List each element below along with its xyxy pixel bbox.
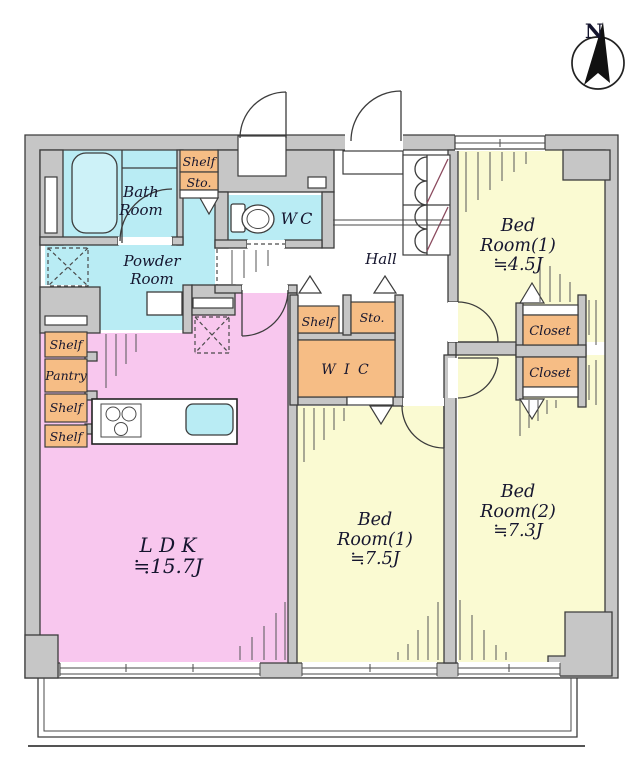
bedroom2-label-1: Bed — [500, 482, 535, 502]
left-wall-slot — [45, 316, 87, 325]
shelf-opening-marker — [299, 276, 321, 293]
shelf-left1-label: Shelf — [50, 337, 85, 352]
wall-hall-ldk-right — [288, 285, 297, 293]
wall-wic-right — [395, 295, 403, 405]
bedroom75-label-1: Bed — [357, 510, 392, 530]
wall-wc-bottom-left — [215, 240, 247, 248]
bedroom45-label-3: ≒4.5J — [493, 255, 543, 275]
wall-powder-right — [183, 285, 192, 333]
wall-wic-left — [290, 295, 298, 405]
pantry-label: Pantry — [44, 368, 87, 383]
north-compass: N — [572, 19, 624, 89]
wall-wc-bottom-right — [285, 240, 322, 248]
bedroom45-label-1: Bed — [500, 216, 535, 236]
bedroom2-label-2: Room(2) — [479, 502, 556, 522]
vanity-counter — [147, 292, 182, 315]
wall-bath-bottom-left — [40, 237, 118, 245]
window-bottom-ldk — [60, 662, 260, 677]
wic-sliding-strip — [347, 397, 393, 405]
wall-bath-bottom-right — [172, 237, 183, 245]
powder-label-1: Powder — [122, 252, 181, 270]
window-top-bedroom45 — [455, 134, 545, 151]
wall-bedroom-divider — [444, 355, 456, 663]
balcony-inner-line — [44, 678, 571, 731]
wall-closet-spacer — [516, 345, 586, 357]
wic-label: W I C — [321, 362, 371, 378]
bedroom75-label-3: ≒7.5J — [350, 549, 400, 569]
bedroom2-label-3: ≒7.3J — [493, 521, 543, 541]
sto-top-label: Sto. — [187, 175, 212, 190]
wall-niche — [193, 298, 233, 308]
closet1-sliding-strip — [523, 305, 578, 315]
shelf-left3-label: Shelf — [50, 429, 85, 444]
balcony — [28, 678, 585, 746]
balcony-outer-line — [38, 678, 577, 737]
pipe-space-slot — [45, 177, 57, 233]
hatch-hall — [232, 250, 268, 284]
closet1-label: Closet — [529, 324, 571, 339]
wall-step-top-right — [563, 150, 610, 180]
sto-sliding-strip — [180, 190, 218, 198]
small-utility-box — [308, 177, 326, 188]
entrance-opening — [345, 134, 403, 151]
sto-mid-label: Sto. — [360, 310, 385, 325]
kitchen-counter — [92, 399, 237, 444]
wall-wc-right — [322, 192, 334, 248]
wall-hall-ldk-left — [215, 285, 242, 293]
closet2-sliding-strip — [523, 387, 578, 397]
window-bottom-bedroom1 — [302, 662, 437, 677]
wall-wic-bottom-stub — [393, 397, 403, 406]
shelf-left2-label: Shelf — [50, 400, 85, 415]
wc-door-dashed — [247, 240, 285, 248]
hall-label: Hall — [364, 250, 397, 268]
shelf-mid-label: Shelf — [302, 314, 337, 329]
wc-label: WC — [281, 209, 316, 228]
meter-box-door-swing — [240, 92, 286, 138]
bedroom45-label-2: Room(1) — [479, 236, 556, 256]
wall-shelf-sto-stub — [343, 295, 351, 335]
entrance-step — [343, 151, 403, 174]
kitchen-sink — [186, 404, 233, 435]
toilet-icon — [231, 204, 274, 233]
closet2-label: Closet — [529, 366, 571, 381]
shoe-cabinet — [403, 155, 450, 255]
shelf-top-label: Shelf — [183, 154, 218, 169]
bathtub — [72, 153, 117, 233]
sto2-opening-marker — [374, 276, 396, 293]
floor-plan-page: N Bath Room Powder Room WC Hall Bed Room… — [0, 0, 642, 761]
entrance-door-swing — [351, 91, 401, 141]
window-bottom-bedroom2 — [458, 662, 560, 677]
wall-powder-left-chunk — [40, 287, 100, 333]
bath-label-1: Bath — [122, 183, 159, 201]
meter-box — [238, 136, 286, 176]
powder-label-2: Room — [129, 270, 174, 288]
wall-bedroom45-bedroom2 — [456, 342, 523, 355]
bedroom75-label-2: Room(1) — [336, 530, 413, 550]
wall-wic-bottom — [298, 397, 347, 405]
wall-pillar-bottom-left — [25, 635, 58, 678]
floor-plan-image: N Bath Room Powder Room WC Hall Bed Room… — [0, 0, 642, 761]
ldk-label-2: ≒15.7J — [133, 554, 203, 578]
compass-north-label: N — [585, 19, 603, 43]
bath-label-2: Room — [118, 201, 163, 219]
